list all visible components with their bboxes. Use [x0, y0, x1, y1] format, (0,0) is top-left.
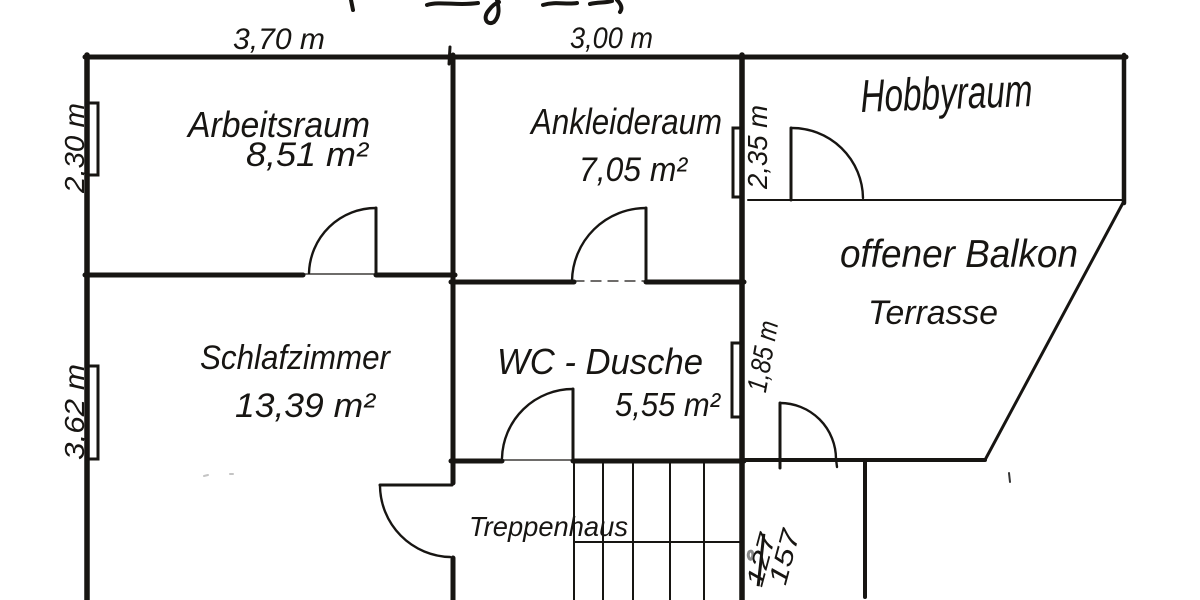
svg-text:1,85 m: 1,85 m [741, 318, 784, 394]
svg-text:3,70 m: 3,70 m [233, 23, 325, 56]
svg-text:2,35 m: 2,35 m [742, 105, 773, 190]
svg-text:Schlafzimmer: Schlafzimmer [200, 339, 392, 377]
svg-text:Ankleideraum: Ankleideraum [529, 101, 722, 142]
svg-text:5,55 m²: 5,55 m² [615, 386, 721, 423]
svg-text:offener Balkon: offener Balkon [840, 233, 1078, 276]
svg-text:Terrasse: Terrasse [868, 294, 998, 332]
svg-text:Hobbyraum: Hobbyraum [860, 64, 1034, 122]
svg-text:8,51 m²: 8,51 m² [246, 136, 370, 174]
svg-text:WC - Dusche: WC - Dusche [497, 341, 703, 382]
svg-text:7,05 m²: 7,05 m² [579, 151, 689, 189]
svg-text:3,00 m: 3,00 m [570, 22, 653, 55]
svg-text:157: 157 [762, 524, 806, 588]
svg-text:Treppenhaus: Treppenhaus [469, 511, 628, 542]
svg-text:13,39 m²: 13,39 m² [235, 387, 377, 425]
svg-text:2,30 m: 2,30 m [59, 103, 90, 194]
svg-text:3,62 m: 3,62 m [59, 364, 90, 460]
